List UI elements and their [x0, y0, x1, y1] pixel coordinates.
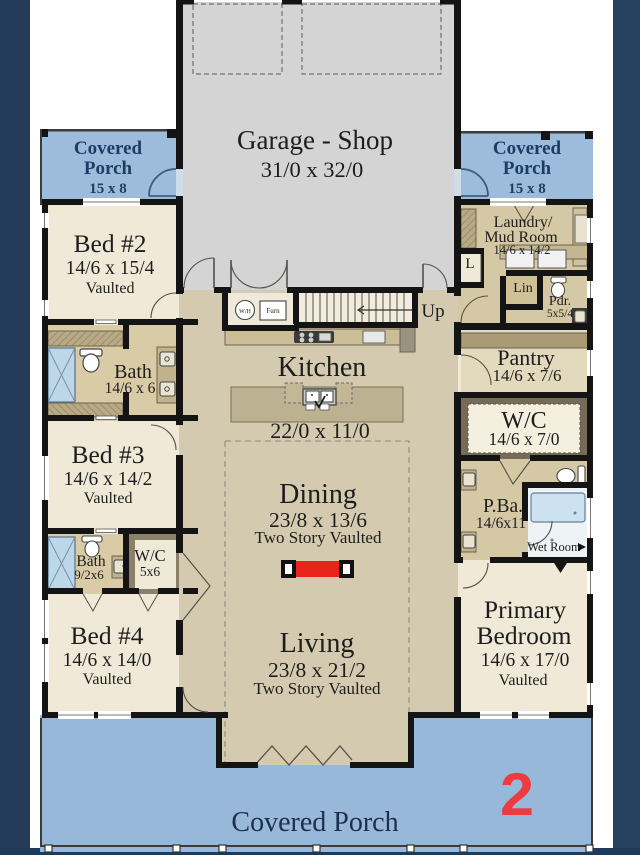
svg-text:W/C: W/C	[134, 546, 165, 565]
svg-text:15 x 8: 15 x 8	[89, 181, 127, 197]
svg-text:14/6 x 14/2: 14/6 x 14/2	[64, 469, 153, 490]
svg-text:Porch: Porch	[84, 158, 133, 179]
svg-text:2: 2	[500, 761, 534, 828]
svg-text:14/6x11: 14/6x11	[476, 515, 526, 532]
svg-text:Vaulted: Vaulted	[86, 280, 135, 297]
svg-text:Living: Living	[280, 628, 355, 659]
svg-text:Porch: Porch	[503, 158, 552, 179]
svg-text:P.Ba.: P.Ba.	[483, 496, 523, 517]
svg-text:Pdr.: Pdr.	[549, 294, 571, 309]
svg-text:Furn: Furn	[266, 307, 280, 315]
svg-text:Covered: Covered	[493, 138, 562, 159]
svg-text:Vaulted: Vaulted	[84, 490, 133, 507]
svg-text:Up: Up	[421, 301, 444, 322]
svg-text:14/6 x 7/0: 14/6 x 7/0	[489, 429, 560, 449]
svg-text:Bed #3: Bed #3	[72, 440, 145, 469]
svg-text:14/6 x 15/4: 14/6 x 15/4	[66, 258, 155, 279]
svg-text:14/6 x 17/0: 14/6 x 17/0	[481, 650, 570, 671]
svg-text:14/6 x 14/2: 14/6 x 14/2	[494, 243, 551, 257]
svg-text:22/0 x 11/0: 22/0 x 11/0	[270, 418, 369, 443]
svg-text:Dining: Dining	[279, 479, 357, 510]
svg-text:Two Story Vaulted: Two Story Vaulted	[255, 528, 382, 547]
svg-text:Garage - Shop: Garage - Shop	[237, 125, 393, 155]
svg-text:14/6 x 6: 14/6 x 6	[105, 380, 156, 397]
svg-text:Kitchen: Kitchen	[278, 352, 367, 383]
svg-text:Bed #4: Bed #4	[71, 621, 144, 650]
svg-text:5x6: 5x6	[140, 564, 161, 579]
svg-text:Covered Porch: Covered Porch	[231, 807, 398, 838]
svg-text:Vaulted: Vaulted	[83, 671, 132, 688]
svg-text:5x5/4: 5x5/4	[547, 308, 573, 320]
svg-text:Primary: Primary	[484, 595, 566, 624]
svg-text:15 x 8: 15 x 8	[508, 181, 546, 197]
svg-text:Bedroom: Bedroom	[477, 621, 572, 650]
svg-text:9/2x6: 9/2x6	[74, 567, 104, 582]
svg-text:Two Story Vaulted: Two Story Vaulted	[254, 679, 381, 698]
svg-text:Bed #2: Bed #2	[74, 229, 147, 258]
svg-text:W/H: W/H	[239, 309, 251, 315]
svg-text:Wet Room: Wet Room	[527, 540, 581, 554]
svg-text:Covered: Covered	[74, 138, 143, 159]
svg-text:14/6 x 14/0: 14/6 x 14/0	[63, 650, 152, 671]
svg-text:Lin: Lin	[513, 281, 532, 296]
svg-text:31/0 x 32/0: 31/0 x 32/0	[261, 157, 364, 182]
svg-text:Vaulted: Vaulted	[499, 672, 548, 689]
svg-text:L: L	[465, 256, 474, 272]
svg-text:14/6 x 7/6: 14/6 x 7/6	[493, 366, 562, 385]
